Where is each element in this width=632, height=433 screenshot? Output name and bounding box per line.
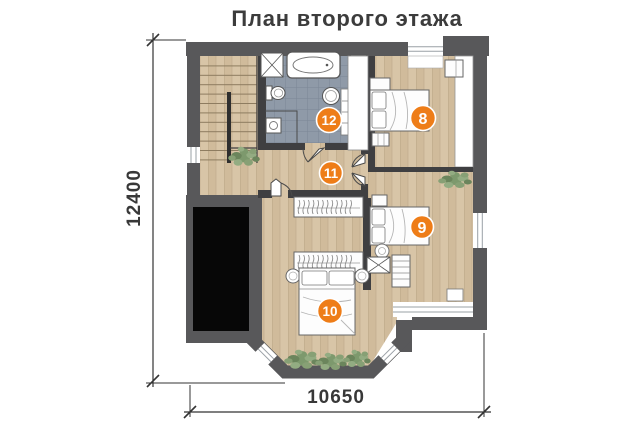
storage-box-icon [367, 257, 390, 273]
bath-cabinet [348, 56, 368, 150]
room-marker-12: 12 [317, 108, 342, 133]
room-marker-8: 8 [411, 106, 436, 131]
dimension-label-horizontal: 10650 [307, 387, 365, 408]
dimension-label-vertical: 12400 [124, 169, 145, 227]
room-marker-10-label: 10 [322, 304, 337, 319]
wall-shelf [445, 60, 463, 77]
bathtub-icon [287, 52, 340, 78]
nightstand [370, 78, 390, 90]
pouf-icon [375, 244, 389, 258]
toilet-icon [266, 86, 285, 100]
nightstand [372, 195, 387, 206]
window-left [187, 147, 200, 163]
room-marker-9-label: 9 [418, 220, 427, 237]
window-top [408, 42, 443, 68]
shelf-unit [392, 255, 410, 287]
side-table [286, 269, 300, 283]
room-marker-8-label: 8 [419, 111, 428, 128]
window-right [473, 213, 487, 248]
vent-box-icon [261, 53, 283, 77]
floor-plan-page: 8 9 10 11 12 12400 10650 [0, 0, 632, 433]
room-marker-9: 9 [411, 216, 434, 239]
radiator-icon [447, 289, 463, 301]
washing-machine-icon [266, 118, 281, 133]
side-table [355, 269, 369, 283]
sink-icon [323, 88, 340, 105]
room-marker-11: 11 [320, 162, 343, 185]
window-bedroom9-south [393, 302, 473, 317]
floor-plan-drawing: 8 9 10 11 12 12400 10650 [0, 0, 632, 433]
page-title: План второго этажа [231, 6, 462, 31]
room-marker-12-label: 12 [321, 113, 336, 128]
dresser [372, 133, 389, 146]
staircase [200, 56, 257, 163]
room-marker-11-label: 11 [324, 166, 339, 181]
wardrobe-icon [294, 197, 363, 217]
void-area [193, 207, 250, 331]
room-marker-10: 10 [318, 299, 343, 324]
